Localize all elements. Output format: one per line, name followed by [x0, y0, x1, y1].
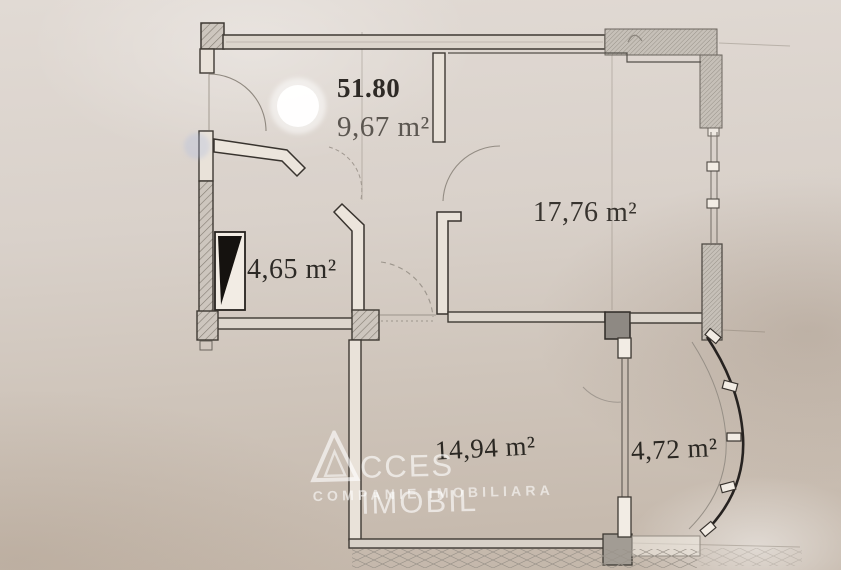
bathroom-area-label: 4,65 m² [247, 256, 337, 284]
wall-partition-lower [437, 212, 461, 314]
wall-bedroom-left [349, 340, 361, 540]
wall-bathroom-right [334, 204, 364, 312]
entry-door-arc [209, 74, 266, 131]
bedroom-area-label: 14,94 m² [434, 432, 536, 464]
wall-bathroom-bottom [213, 318, 353, 329]
pier-right [702, 244, 722, 340]
hallway-area-label: 9,67 m² [337, 113, 430, 142]
wall-left-hatched [199, 181, 213, 312]
pillar-mid [352, 310, 379, 340]
bedroom-walls [349, 340, 802, 568]
balcony-area-label: 4,72 m² [630, 434, 718, 465]
wall-bathroom-angled-top [214, 139, 305, 176]
bathroom-door-arc [329, 147, 362, 199]
construction-lines [362, 32, 800, 547]
blue-glare [184, 133, 210, 159]
wall-block-top-left [201, 23, 224, 49]
lower-balcony-grid [352, 549, 697, 568]
wall-partition-upper [433, 53, 445, 142]
bedroom-door-arc [381, 262, 433, 317]
light-glare [270, 78, 326, 134]
livingroom-area-label: 17,76 m² [533, 199, 637, 227]
livingroom-walls [448, 132, 722, 357]
window-post-bottom [618, 497, 631, 537]
window-livingroom-mullion [707, 162, 719, 171]
window-post-top [618, 338, 631, 358]
bathroom-walls [197, 139, 379, 350]
wall-entry-upper [200, 49, 214, 73]
livingroom-door-arc [443, 146, 500, 201]
pillar-left [197, 311, 218, 340]
pillar-center [605, 312, 630, 339]
balcony-door-arc [583, 387, 622, 402]
wall-parapet-right [700, 55, 722, 128]
wall-bedroom-bottom [349, 539, 632, 548]
floorplan-drawing [0, 0, 841, 570]
wall-livingroom-bottom [448, 312, 605, 322]
wall-parapet-top-right [605, 29, 717, 55]
wall-balcony-top [630, 313, 703, 323]
balcony [583, 328, 743, 537]
total-area-label: 51.80 [337, 75, 400, 102]
floorplan-photo: 51.80 9,67 m² 17,76 m² 4,65 m² 14,94 m² … [0, 0, 841, 570]
window-livingroom-mullion [707, 199, 719, 208]
